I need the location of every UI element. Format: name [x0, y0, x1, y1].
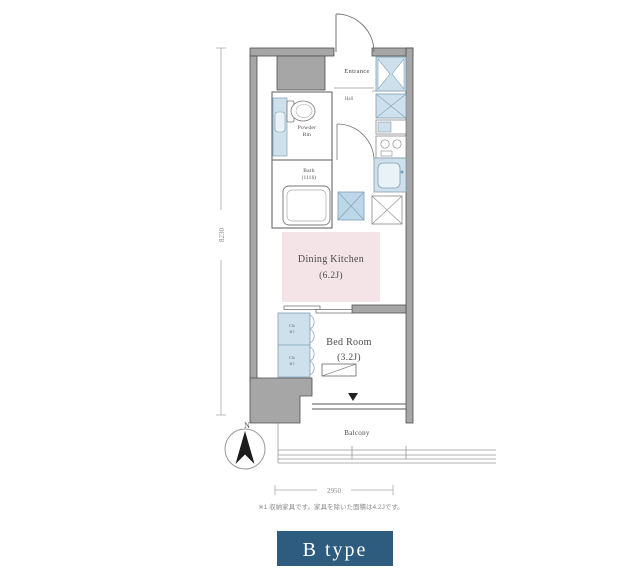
type-badge: B type — [277, 531, 393, 566]
closet-fold-door-arc — [310, 329, 314, 343]
entrance-door — [336, 14, 374, 52]
pipe-shaft-block — [277, 56, 325, 90]
vanity-sink — [275, 112, 285, 132]
wall-right — [406, 48, 413, 423]
sanitary-module: Powder Rm Bath (1116) — [272, 92, 332, 228]
floorplan-drawing: Entrance Hall Powder Rm Bath (1116) — [0, 0, 640, 569]
closet-ref-label: ※1 — [289, 361, 295, 366]
closet-fold-door-arc — [310, 347, 314, 361]
closet-fold-door-arc — [310, 315, 314, 329]
window-lines — [312, 404, 406, 409]
hall-door-swing-arc — [337, 124, 374, 161]
wall-bottom-left-block — [250, 378, 312, 423]
bedroom-label: Bed Room — [326, 337, 371, 348]
sliding-door-panel — [284, 306, 320, 310]
toilet-bowl — [291, 101, 315, 121]
bath-label: Bath — [303, 168, 315, 174]
hall-label: Hall — [345, 97, 354, 102]
entrance-label: Entrance — [344, 68, 370, 75]
stove-grill — [381, 151, 392, 156]
dining-kitchen-size-label: (6.2J) — [319, 270, 343, 281]
dimension-horizontal-value: 2950 — [327, 487, 342, 495]
sliding-door-panel — [316, 310, 352, 314]
bedroom-size-label: (3.2J) — [337, 352, 361, 363]
wall-room-divider — [352, 305, 406, 313]
type-badge-label: B type — [303, 539, 368, 561]
window-marker-triangle — [348, 393, 358, 401]
dimension-horizontal: 2950 — [275, 484, 393, 496]
footnote-text: ※1 収納家具です。家具を除いた面積は4.2Jです。 — [258, 502, 403, 511]
powder-room-label: Powder — [298, 125, 317, 131]
hall-door — [337, 124, 374, 161]
kitchen-counter-unit — [378, 122, 391, 132]
dining-kitchen-room: Dining Kitchen (6.2J) — [282, 232, 380, 302]
dimension-vertical: 8230 — [215, 48, 227, 415]
kitchen-faucet — [401, 171, 404, 174]
balcony-area: Balcony — [278, 423, 496, 463]
closet-label: Clo — [289, 323, 295, 328]
kitchen-fixtures — [338, 94, 406, 224]
bathtub — [283, 186, 330, 225]
dining-kitchen-floor — [282, 232, 380, 302]
compass: N — [225, 421, 265, 469]
dimension-vertical-value: 8230 — [218, 228, 226, 243]
kitchen-sink-basin — [378, 163, 400, 188]
powder-room-label2: Rm — [303, 132, 312, 138]
closet-ref-label: ※1 — [289, 329, 295, 334]
wall-top-left — [250, 48, 334, 56]
entrance-door-swing-arc — [336, 14, 374, 52]
wall-left — [250, 56, 257, 382]
closet-label: Clo — [289, 355, 295, 360]
sliding-doors — [284, 306, 352, 313]
closet-fold-door-arc — [310, 361, 314, 375]
dining-kitchen-label: Dining Kitchen — [298, 254, 364, 265]
balcony-label: Balcony — [344, 429, 370, 437]
floorplan-page: Entrance Hall Powder Rm Bath (1116) — [0, 0, 640, 569]
bath-size-label: (1116) — [302, 176, 317, 181]
